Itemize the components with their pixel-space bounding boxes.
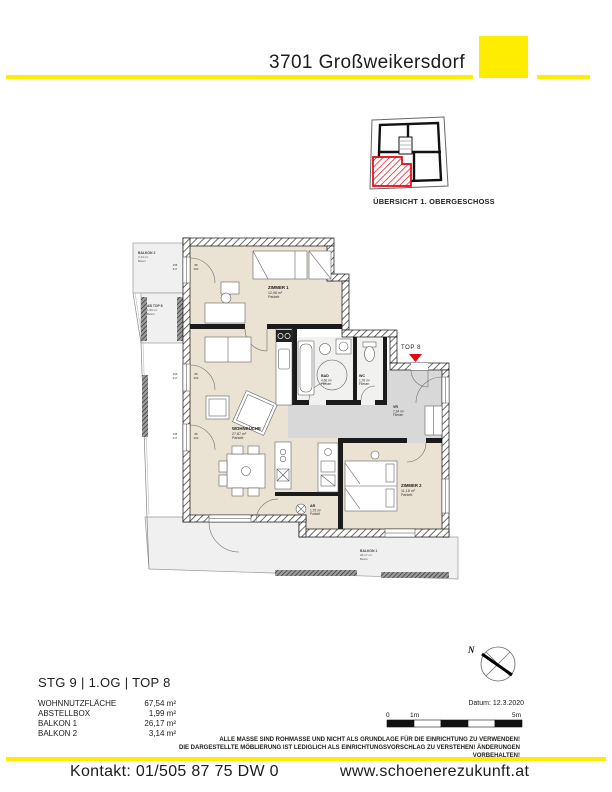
label-wohnkueche: WOHNKÜCHE — [232, 426, 261, 431]
scale-one: 1m — [410, 712, 419, 719]
door-opening — [361, 400, 375, 405]
svg-text:Beton: Beton — [360, 557, 368, 561]
stove — [276, 330, 292, 342]
north-needle — [482, 654, 512, 675]
label-bad: BAD — [321, 374, 329, 378]
label-ar: AR — [310, 504, 316, 508]
svg-text:200: 200 — [194, 436, 199, 440]
row-value: 26,17 m² — [144, 719, 176, 729]
scale-bar: 0 1m 5m — [385, 710, 525, 732]
svg-text:200: 200 — [194, 376, 199, 380]
svg-text:217: 217 — [173, 436, 178, 440]
website-link: www.schoenerezukunft.at — [340, 763, 529, 781]
overview-caption: ÜBERSICHT 1. OBERGESCHOSS — [350, 197, 518, 206]
door-opening — [245, 324, 267, 329]
footer-rule — [6, 757, 606, 761]
table-row: BALKON 2 3,14 m² — [38, 729, 176, 739]
overview-miniplan — [358, 112, 458, 198]
door-opening — [309, 400, 326, 405]
svg-text:Parkett: Parkett — [232, 436, 243, 440]
washbasin — [320, 344, 331, 355]
brand-yellow-square — [479, 36, 528, 78]
row-label: WOHNNUTZFLÄCHE — [38, 699, 116, 709]
north-label: N — [467, 645, 475, 655]
date-label: Datum: 12.3.2020 — [404, 700, 524, 707]
railing-bar — [381, 572, 449, 578]
contact-info: Kontakt: 01/505 87 75 DW 0 — [70, 763, 279, 781]
svg-text:Beton: Beton — [147, 312, 155, 316]
floorplan: 155 217 88 200 155 217 88 200 155 217 88… — [125, 225, 465, 595]
svg-text:Parkett: Parkett — [268, 295, 279, 299]
svg-text:Fliesen: Fliesen — [359, 382, 370, 386]
row-value: 67,54 m² — [144, 699, 176, 709]
unit-entrance-marker: TOP 8 — [401, 345, 422, 362]
entrance-triangle-icon — [409, 354, 422, 362]
svg-text:Fliesen: Fliesen — [393, 413, 404, 417]
compass-icon: N — [458, 636, 534, 692]
unit-marker-label: TOP 8 — [401, 345, 421, 351]
door-opening — [407, 438, 426, 443]
overview-stairs — [399, 137, 412, 154]
label-wc: WC — [359, 374, 365, 378]
svg-text:200: 200 — [194, 267, 199, 271]
toilet — [365, 347, 375, 362]
area-table: WOHNNUTZFLÄCHE 67,54 m² ABSTELLBOX 1,99 … — [38, 699, 176, 739]
row-label: ABSTELLBOX — [38, 709, 90, 719]
scale-five: 5m — [512, 712, 521, 719]
svg-text:217: 217 — [173, 267, 178, 271]
svg-text:Fliesen: Fliesen — [321, 382, 332, 386]
railing-bar — [177, 297, 183, 341]
header-rule-right — [537, 75, 590, 79]
label-zimmer1: ZIMMER 1 — [268, 285, 289, 290]
disclaimer-line-1: ALLE MASSE SIND ROHMASSE UND NICHT ALS G… — [160, 736, 520, 744]
table-row: ABSTELLBOX 1,99 m² — [38, 709, 176, 719]
page-title: 3701 Großweikersdorf — [269, 52, 465, 74]
label-vr: VR — [393, 405, 398, 409]
plan-sheet: 3701 Großweikersdorf ÜBERSICHT 1. OBERGE… — [0, 0, 612, 792]
header-rule-left — [6, 75, 473, 79]
table-row: WOHNNUTZFLÄCHE 67,54 m² — [38, 699, 176, 709]
scale-zero: 0 — [386, 712, 390, 719]
svg-text:217: 217 — [173, 376, 178, 380]
railing-bar — [142, 375, 148, 437]
unit-heading: STG 9 | 1.OG | TOP 8 — [38, 675, 171, 690]
row-value: 1,99 m² — [149, 709, 176, 719]
svg-text:Beton: Beton — [138, 259, 146, 263]
nightstand — [371, 451, 379, 459]
row-label: BALKON 1 — [38, 719, 77, 729]
label-zimmer2: ZIMMER 2 — [401, 483, 422, 488]
bathtub — [298, 341, 314, 395]
svg-text:Parkett: Parkett — [310, 512, 320, 516]
railing-bar — [275, 570, 357, 576]
svg-text:Parkett: Parkett — [401, 493, 412, 497]
entrance-door-opening — [411, 363, 428, 370]
washing-machine — [336, 339, 351, 354]
row-label: BALKON 2 — [38, 729, 77, 739]
table-row: BALKON 1 26,17 m² — [38, 719, 176, 729]
